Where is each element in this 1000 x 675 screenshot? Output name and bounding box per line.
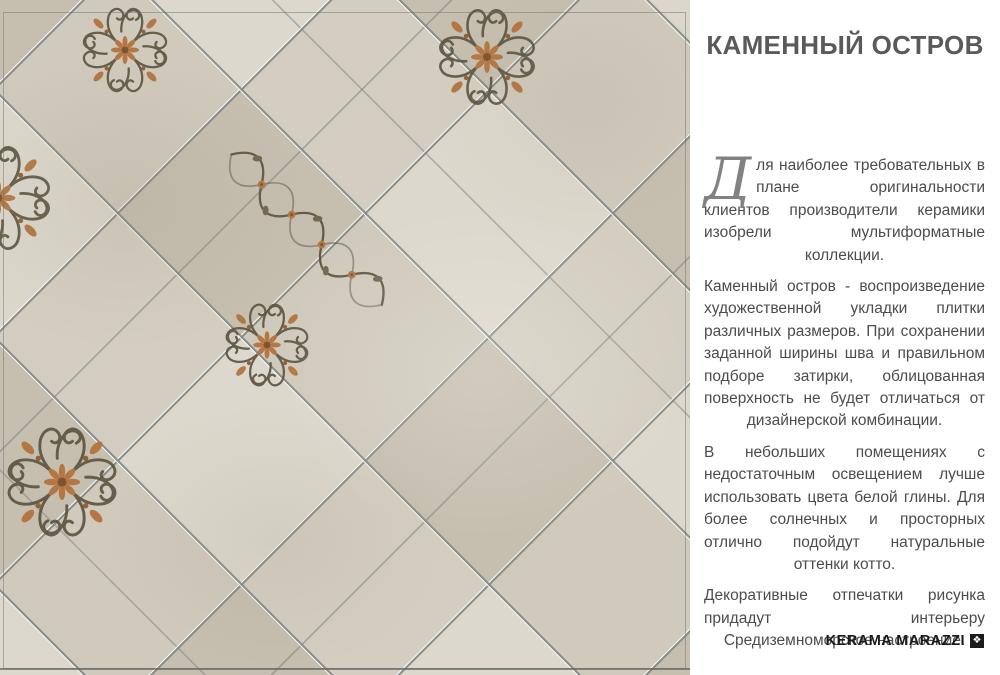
paragraph: Каменный остров - воспроизведение художе… (704, 276, 985, 433)
info-panel: КАМЕННЫЙ ОСТРОВ Для наиболее требователь… (690, 0, 1000, 675)
intro-paragraph: Для наиболее требовательных в плане ориг… (704, 155, 985, 267)
paragraph: В небольших помещениях с недостаточным о… (704, 442, 985, 576)
brand-logo: KERAMA MARAZZI ❖ (826, 633, 984, 649)
brand-mark-icon: ❖ (970, 634, 984, 648)
tile-photo (0, 0, 690, 675)
article-text: Для наиболее требовательных в плане ориг… (704, 155, 985, 653)
photo-bottom-edge (0, 668, 690, 670)
collection-title: КАМЕННЫЙ ОСТРОВ (702, 29, 988, 61)
catalog-page: КАМЕННЫЙ ОСТРОВ Для наиболее требователь… (0, 0, 1000, 675)
brand-name: KERAMA MARAZZI (826, 633, 965, 649)
drop-cap: Д (704, 157, 751, 201)
